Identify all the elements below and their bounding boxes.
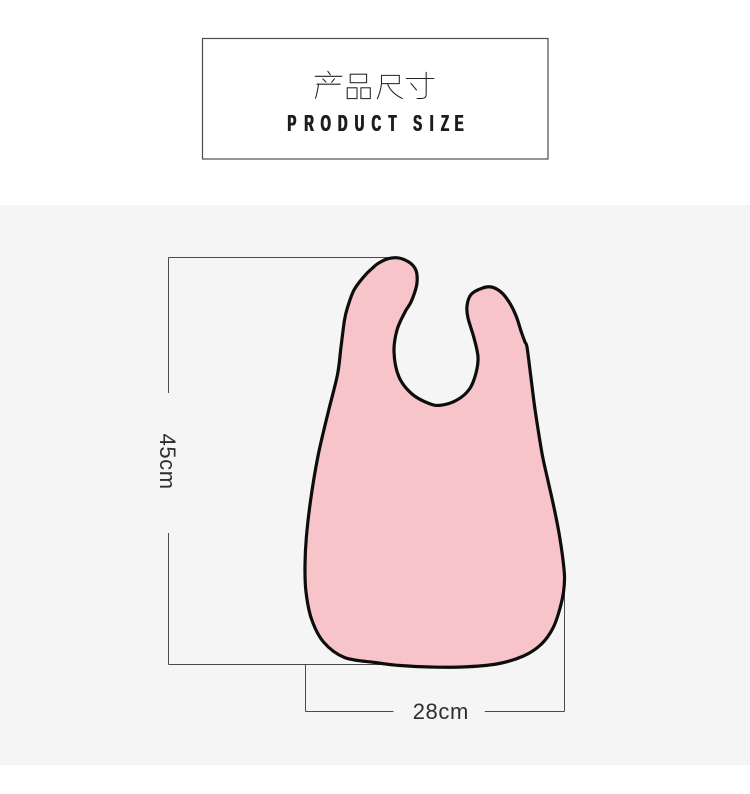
svg-text:45cm: 45cm [155, 433, 180, 489]
svg-text:28cm: 28cm [413, 699, 469, 724]
